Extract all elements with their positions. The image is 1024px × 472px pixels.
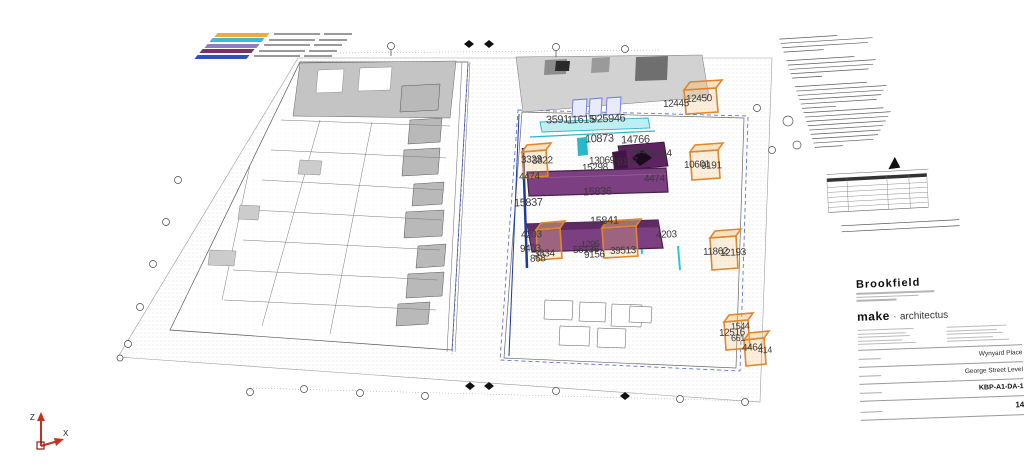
legend-color-swatch (209, 38, 264, 42)
orange-box (536, 221, 565, 260)
architect-logo-architectus: architectus (900, 309, 949, 322)
project-name: Wynyard Place (979, 349, 1023, 358)
legend-item (196, 54, 356, 59)
axis-tripod-icon[interactable]: Z X (30, 412, 69, 449)
orange-box (602, 219, 641, 258)
phasing-legend (196, 32, 356, 60)
sheet-note: 14 (1015, 400, 1024, 409)
z-axis-label: Z (30, 413, 35, 422)
architect-logo-make: make (857, 308, 890, 323)
detail-symbol (793, 141, 801, 149)
scale-field-label (860, 411, 882, 413)
legend-color-swatch (214, 33, 269, 37)
number-field-label (860, 392, 882, 394)
title-block: Brookfield make · architectus Wynyard Pl… (856, 273, 1024, 409)
dark-purple-fittings[interactable] (612, 142, 668, 170)
general-notes-lines (779, 33, 892, 149)
orange-box (710, 229, 741, 270)
drawing-number: KBP-A1-DA-1 (979, 383, 1024, 392)
legend-color-swatch (199, 49, 254, 53)
legend-color-swatch (194, 55, 249, 59)
firm-address-columns (857, 322, 1022, 345)
orange-box (744, 331, 769, 366)
orange-box (690, 143, 723, 180)
detail-symbol (783, 116, 793, 126)
client-address-line (856, 290, 934, 294)
orange-box (522, 143, 551, 178)
project-field-label (859, 358, 881, 360)
north-arrow-icon (888, 157, 901, 170)
blue-framed-units[interactable] (572, 97, 621, 117)
architect-logo: make · architectus (857, 304, 1021, 324)
orange-box (684, 80, 722, 114)
viewport: Z X 124501244535911161592594610873147663… (0, 0, 1024, 472)
sheet-title: George Street Level (965, 366, 1023, 375)
legend-color-swatch (204, 44, 259, 48)
client-address-line (856, 294, 918, 298)
logo-separator: · (893, 311, 897, 322)
revision-table (826, 154, 960, 233)
title-field-label (859, 375, 881, 377)
client-address-line (857, 298, 897, 301)
x-axis-label: X (63, 429, 69, 438)
